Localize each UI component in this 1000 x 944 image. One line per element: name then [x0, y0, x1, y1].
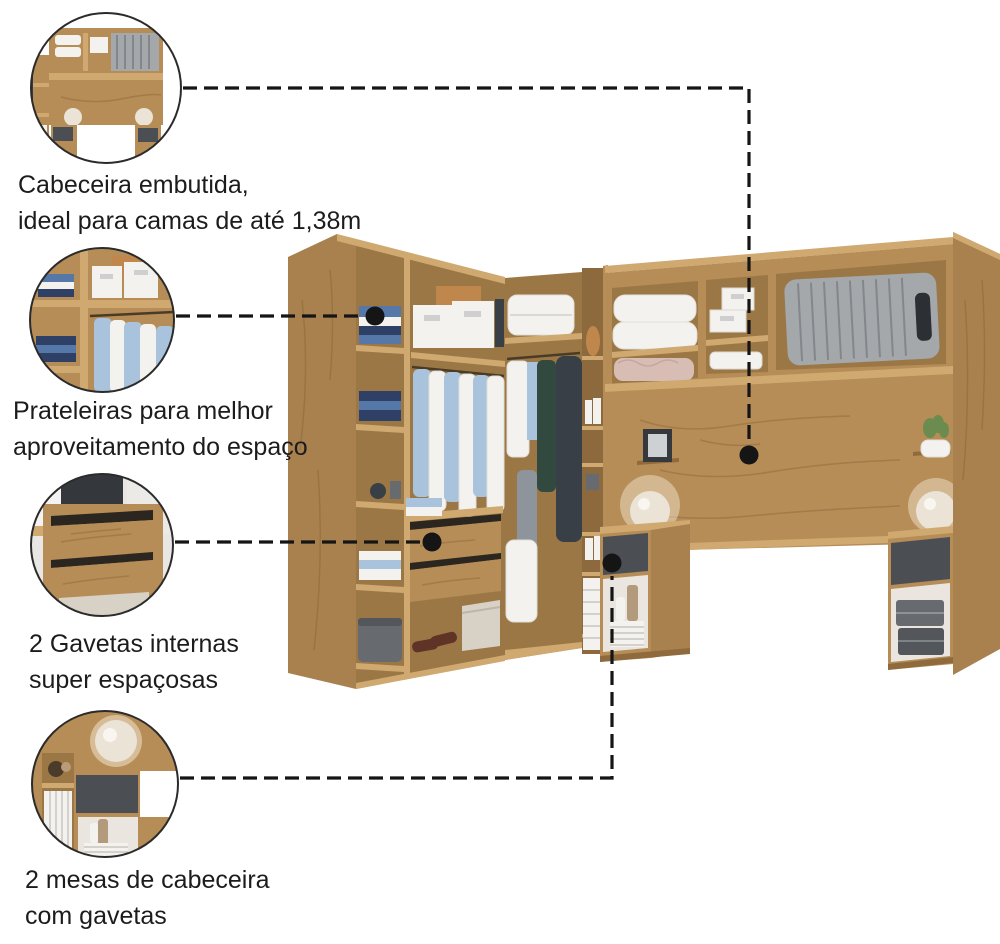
right-side-panel	[953, 232, 1000, 675]
folded-towel	[710, 352, 762, 369]
label-line: super espaçosas	[29, 662, 239, 698]
hanging-shirts	[413, 369, 504, 516]
callout-label-shelves: Prateleiras para melhor aproveitamento d…	[13, 393, 308, 465]
nightstand-drawer-right	[891, 537, 950, 585]
callout-dot-headboard	[740, 446, 759, 465]
furniture-illustration	[0, 0, 1000, 944]
thumb-nightstand-closeup	[32, 711, 178, 857]
internal-drawer-unit	[406, 498, 503, 602]
lamp-right	[916, 491, 956, 531]
callout-dot-drawers	[423, 533, 442, 552]
label-line: 2 Gavetas internas	[29, 626, 239, 662]
decor-sphere	[370, 483, 386, 499]
label-line: aproveitamento do espaço	[13, 429, 308, 465]
label-line: 2 mesas de cabeceira	[25, 862, 270, 898]
photo-frame	[643, 429, 672, 462]
pillows	[613, 295, 697, 349]
thumb-shelves-closeup	[30, 248, 174, 392]
corner-wardrobe-render	[288, 232, 1000, 689]
thumb-headboard-closeup	[31, 13, 181, 163]
label-line: com gavetas	[25, 898, 270, 934]
callout-dot-shelves	[366, 307, 385, 326]
callout-label-headboard: Cabeceira embutida, ideal para camas de …	[18, 167, 361, 239]
label-line: Prateleiras para melhor	[13, 393, 308, 429]
garment-bag	[556, 356, 582, 542]
label-line: ideal para camas de até 1,38m	[18, 203, 361, 239]
product-feature-infographic: Cabeceira embutida, ideal para camas de …	[0, 0, 1000, 944]
thumb-drawers-closeup	[17, 474, 173, 616]
headboard-unit	[600, 232, 1000, 675]
nightstand-right	[888, 526, 953, 670]
callout-dot-nightstands	[603, 554, 622, 573]
wooden-figurine	[586, 326, 600, 356]
pink-pillow	[614, 358, 694, 381]
corner-unit	[505, 272, 582, 660]
label-line: Cabeceira embutida,	[18, 167, 361, 203]
callout-label-nightstands: 2 mesas de cabeceira com gavetas	[25, 862, 270, 934]
suitcase	[784, 272, 940, 366]
book-stack	[610, 621, 644, 647]
left-wardrobe	[288, 234, 505, 689]
callout-label-drawers: 2 Gavetas internas super espaçosas	[29, 626, 239, 698]
